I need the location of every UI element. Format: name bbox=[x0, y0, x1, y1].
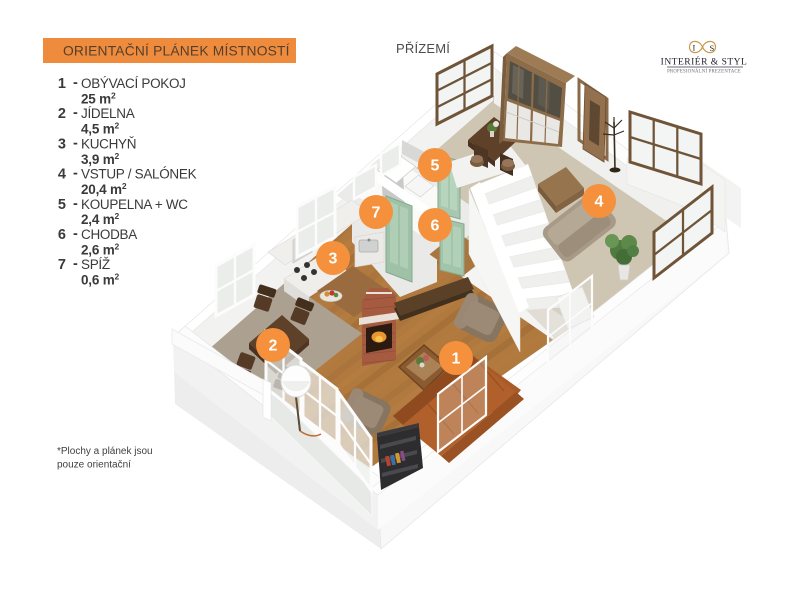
svg-text:S: S bbox=[710, 43, 715, 53]
svg-text:-: - bbox=[73, 135, 78, 151]
svg-text:20,4 m2: 20,4 m2 bbox=[81, 181, 127, 197]
svg-text:25 m2: 25 m2 bbox=[81, 90, 116, 106]
svg-text:I: I bbox=[693, 43, 696, 53]
svg-text:7: 7 bbox=[372, 205, 381, 222]
svg-text:4: 4 bbox=[595, 194, 604, 211]
svg-text:3,9 m2: 3,9 m2 bbox=[81, 151, 120, 167]
svg-text:0,6 m2: 0,6 m2 bbox=[81, 272, 120, 288]
svg-text:5: 5 bbox=[431, 158, 440, 175]
svg-text:*Plochy a plánek jsou: *Plochy a plánek jsou bbox=[57, 446, 153, 457]
svg-text:1: 1 bbox=[58, 76, 66, 92]
svg-text:PŘÍZEMÍ: PŘÍZEMÍ bbox=[396, 41, 450, 56]
svg-text:3: 3 bbox=[329, 251, 338, 268]
svg-text:6: 6 bbox=[431, 218, 440, 235]
svg-text:OBÝVACÍ POKOJ: OBÝVACÍ POKOJ bbox=[81, 76, 186, 91]
svg-text:2,4 m2: 2,4 m2 bbox=[81, 211, 120, 227]
svg-text:4,5 m2: 4,5 m2 bbox=[81, 121, 120, 137]
svg-text:2: 2 bbox=[269, 338, 278, 355]
svg-text:-: - bbox=[73, 105, 78, 121]
svg-text:4: 4 bbox=[58, 167, 66, 183]
svg-text:1: 1 bbox=[452, 351, 461, 368]
svg-text:ORIENTAČNÍ PLÁNEK MÍSTNOSTÍ: ORIENTAČNÍ PLÁNEK MÍSTNOSTÍ bbox=[63, 43, 290, 59]
svg-text:-: - bbox=[73, 166, 78, 182]
svg-text:7: 7 bbox=[58, 257, 66, 273]
svg-text:3: 3 bbox=[58, 136, 66, 152]
svg-text:KUCHYŇ: KUCHYŇ bbox=[81, 136, 136, 151]
svg-text:CHODBA: CHODBA bbox=[81, 227, 137, 242]
svg-text:2: 2 bbox=[58, 106, 66, 122]
svg-text:SPÍŽ: SPÍŽ bbox=[81, 257, 110, 272]
svg-text:PROFESIONÁLNÍ PREZENTACE: PROFESIONÁLNÍ PREZENTACE bbox=[667, 68, 741, 74]
svg-text:VSTUP / SALÓNEK: VSTUP / SALÓNEK bbox=[81, 167, 197, 182]
svg-text:-: - bbox=[73, 226, 78, 242]
svg-text:INTERIÉR & STYL: INTERIÉR & STYL bbox=[661, 56, 748, 68]
svg-text:6: 6 bbox=[58, 227, 66, 243]
svg-text:JÍDELNA: JÍDELNA bbox=[81, 106, 135, 121]
svg-text:-: - bbox=[73, 196, 78, 212]
svg-text:2,6 m2: 2,6 m2 bbox=[81, 241, 120, 257]
svg-text:-: - bbox=[73, 256, 78, 272]
svg-text:KOUPELNA + WC: KOUPELNA + WC bbox=[81, 197, 188, 212]
svg-text:pouze orientační: pouze orientační bbox=[57, 460, 131, 471]
svg-text:-: - bbox=[73, 75, 78, 91]
svg-text:5: 5 bbox=[58, 197, 66, 213]
